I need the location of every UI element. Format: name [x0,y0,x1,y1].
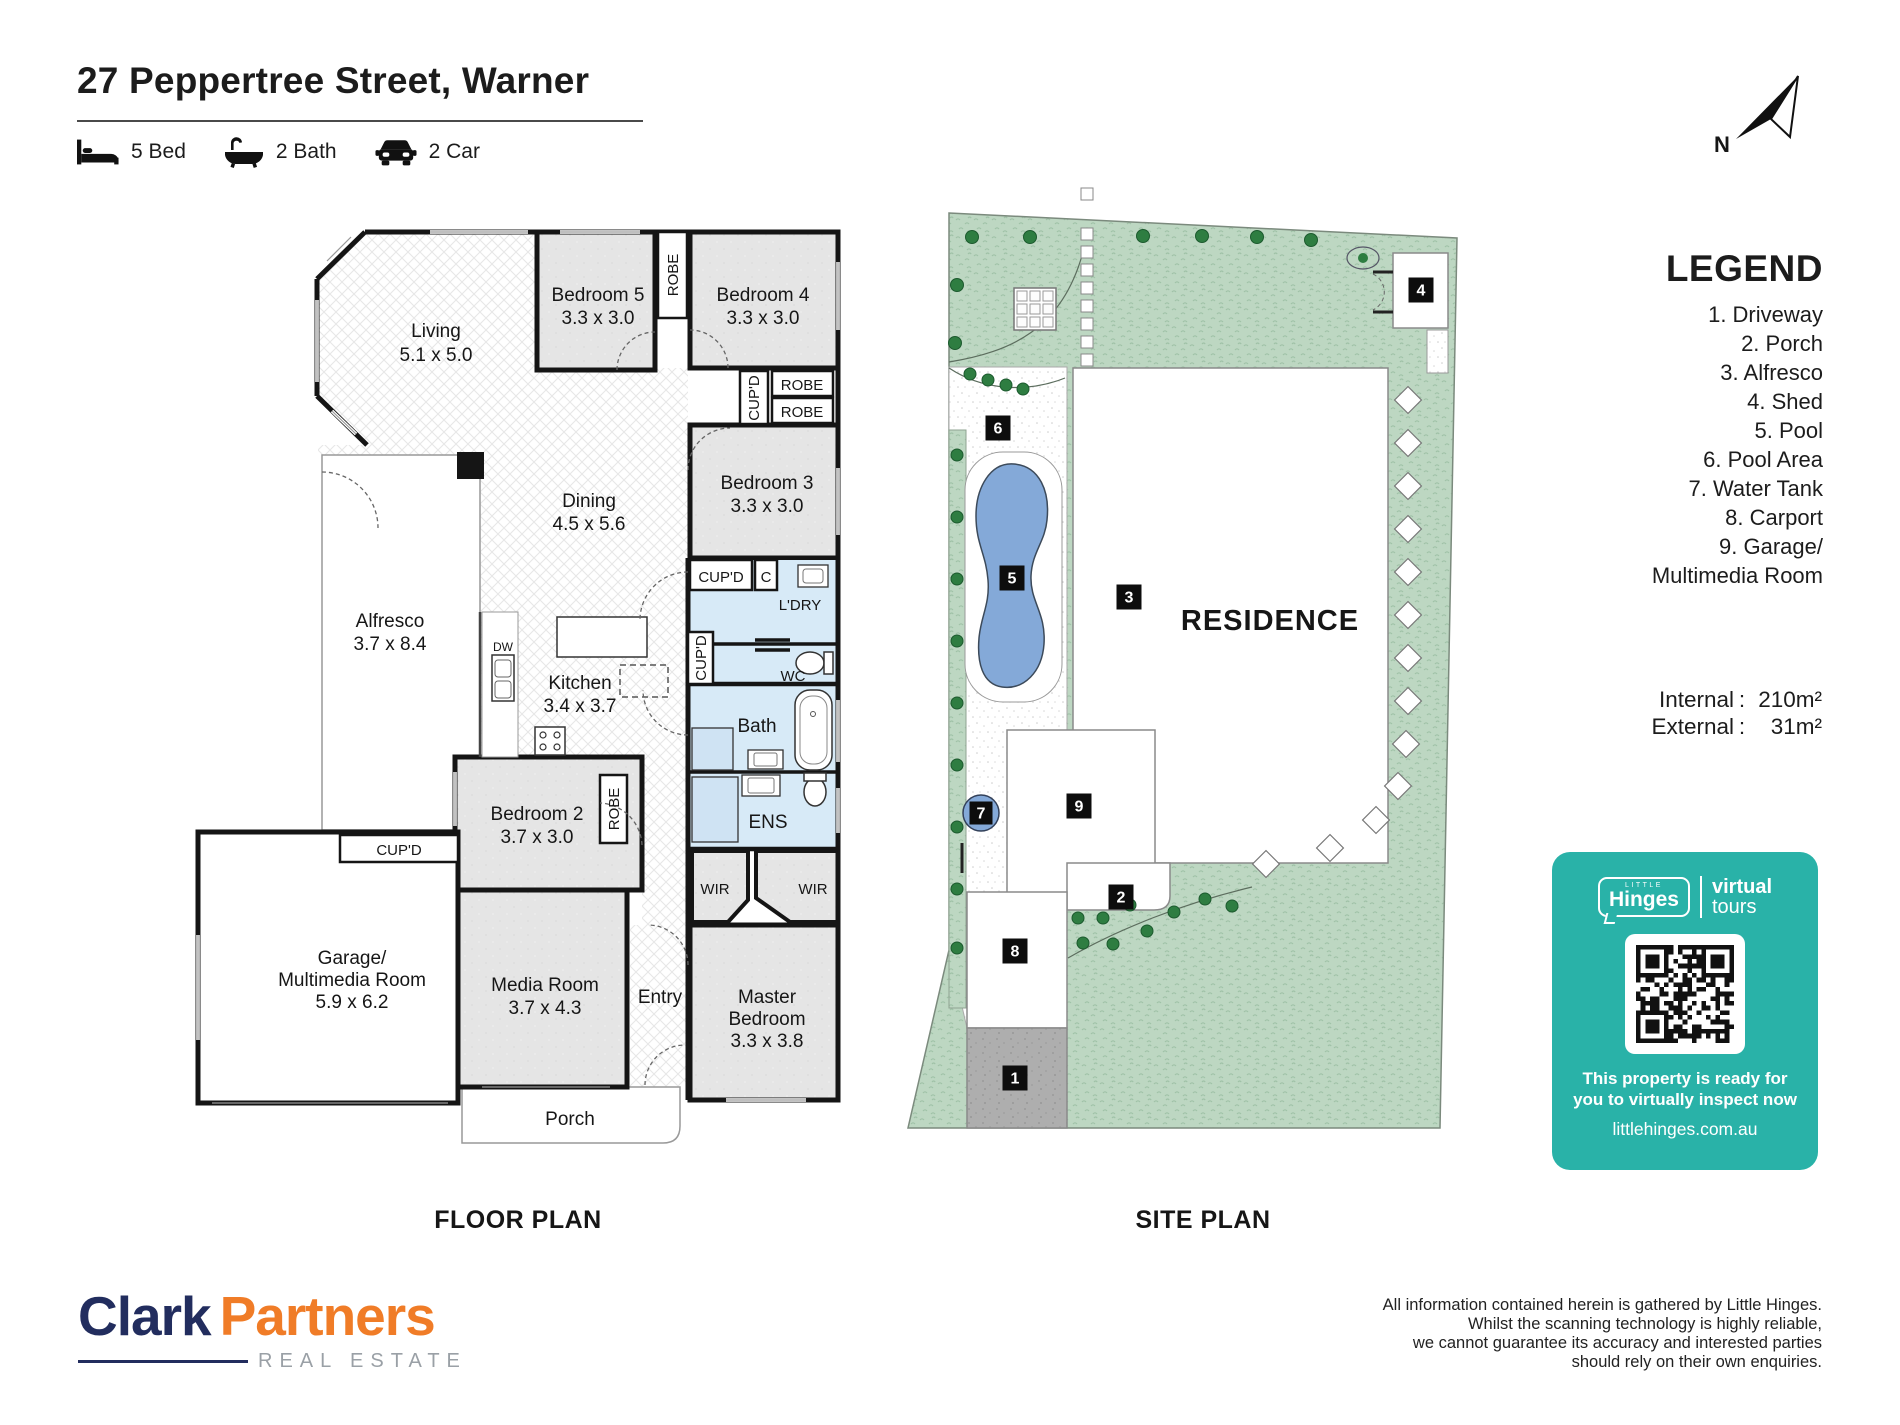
qr-code [1625,934,1745,1054]
svg-text:DW: DW [493,640,514,654]
svg-text:Living: Living [411,321,461,342]
little-hinges-logo: LITTLE Hinges virtual tours [1552,876,1818,918]
legend-item: 8. Carport [1652,503,1823,532]
svg-text:L'DRY: L'DRY [779,597,822,614]
svg-text:5.9 x 6.2: 5.9 x 6.2 [316,992,389,1013]
svg-text:Dining: Dining [562,491,616,512]
internal-label: Internal [1659,686,1734,713]
external-value: 31m² [1771,713,1822,740]
svg-text:3.3 x 3.0: 3.3 x 3.0 [562,308,635,329]
property-floorplan-flyer: 27 Peppertree Street, Warner 5 Bed [0,0,1900,1425]
svg-text:Bedroom: Bedroom [728,1009,805,1030]
legend-item: 4. Shed [1652,387,1823,416]
disclaimer: All information contained herein is gath… [1383,1296,1822,1372]
agency-name-primary: Clark [78,1284,211,1348]
svg-text:3.3 x 3.0: 3.3 x 3.0 [727,308,800,329]
svg-text:Multimedia Room: Multimedia Room [278,970,426,991]
svg-text:Kitchen: Kitchen [548,673,611,694]
svg-text:ROBE: ROBE [781,404,824,421]
logo-rule [78,1360,248,1363]
svg-text:Garage/: Garage/ [318,948,387,969]
svg-text:WC: WC [781,668,806,685]
speech-bubble-icon: LITTLE Hinges [1598,877,1690,917]
floor-plan-title: FLOOR PLAN [434,1206,602,1234]
svg-text:CUP'D: CUP'D [698,569,744,586]
garden-grid [1014,288,1056,330]
internal-area-row: Internal : 210m² [1651,686,1822,713]
svg-text:2: 2 [1117,890,1126,907]
svg-text:3: 3 [1125,590,1134,607]
svg-text:Bedroom 5: Bedroom 5 [552,285,645,306]
legend-item: 5. Pool [1652,416,1823,445]
legend-item: Multimedia Room [1652,561,1823,590]
svg-text:5.1 x 5.0: 5.1 x 5.0 [400,345,473,366]
svg-text:9: 9 [1075,799,1084,816]
floor-plan: Living 5.1 x 5.0 Bedroom 5 3.3 x 3.0 Bed… [198,232,838,1143]
agency-logo: Clark Partners REAL ESTATE [78,1284,498,1373]
plans-canvas: Living 5.1 x 5.0 Bedroom 5 3.3 x 3.0 Bed… [0,0,1900,1425]
legend-item: 6. Pool Area [1652,445,1823,474]
legend-item: 7. Water Tank [1652,474,1823,503]
svg-text:7: 7 [977,806,986,823]
svg-text:Bath: Bath [737,716,776,737]
virtual-tour-message: This property is ready for you to virtua… [1552,1068,1818,1110]
virtual-tour-card: LITTLE Hinges virtual tours This propert… [1552,852,1818,1170]
svg-text:Bedroom 2: Bedroom 2 [491,804,584,825]
residence-label: RESIDENCE [1181,605,1359,637]
svg-text:3.4 x 3.7: 3.4 x 3.7 [544,696,617,717]
legend-item: 1. Driveway [1652,300,1823,329]
svg-text:5: 5 [1008,571,1017,588]
agency-name-secondary: Partners [220,1284,435,1348]
svg-text:ENS: ENS [748,812,787,833]
legend-item: 3. Alfresco [1652,358,1823,387]
svg-text:Bedroom 3: Bedroom 3 [721,473,814,494]
svg-text:ROBE: ROBE [606,788,623,831]
svg-text:CUP'D: CUP'D [376,842,422,859]
svg-text:WIR: WIR [798,881,827,898]
north-arrow-icon: N [1714,76,1798,157]
svg-text:C: C [761,569,772,586]
svg-text:3.7 x 4.3: 3.7 x 4.3 [509,998,582,1019]
site-plan-title: SITE PLAN [1135,1206,1270,1234]
north-label: N [1714,132,1730,157]
legend: LEGEND 1. Driveway 2. Porch 3. Alfresco … [1652,248,1823,590]
svg-text:Entry: Entry [638,987,683,1008]
internal-value: 210m² [1758,686,1822,713]
svg-text:3.7 x 8.4: 3.7 x 8.4 [354,634,427,655]
svg-text:CUP'D: CUP'D [693,635,710,681]
svg-text:3.7 x 3.0: 3.7 x 3.0 [501,827,574,848]
svg-text:6: 6 [994,421,1003,438]
floor-areas: Internal : 210m² External : 31m² [1651,686,1822,740]
legend-item: 2. Porch [1652,329,1823,358]
hall-floor [642,757,688,925]
svg-text:4: 4 [1417,283,1426,300]
bush [1358,253,1368,263]
site-plan: RESIDENCE 1 2 3 4 5 6 7 8 9 [908,188,1457,1128]
svg-text:Bedroom 4: Bedroom 4 [717,285,810,306]
svg-text:Alfresco: Alfresco [356,611,425,632]
svg-text:Porch: Porch [545,1109,595,1130]
svg-text:ROBE: ROBE [781,377,824,394]
svg-text:Master: Master [738,987,797,1008]
external-area-row: External : 31m² [1651,713,1822,740]
shed-pad [1427,330,1448,373]
external-label: External [1651,713,1734,740]
svg-text:8: 8 [1011,944,1020,961]
legend-item: 9. Garage/ [1652,532,1823,561]
svg-text:WIR: WIR [700,881,729,898]
agency-subtitle: REAL ESTATE [258,1350,467,1373]
svg-text:1: 1 [1011,1071,1020,1088]
svg-text:3.3 x 3.8: 3.3 x 3.8 [731,1031,804,1052]
svg-text:CUP'D: CUP'D [746,375,763,421]
virtual-tour-website: littlehinges.com.au [1552,1119,1818,1140]
svg-text:Media Room: Media Room [491,975,599,996]
svg-text:3.3 x 3.0: 3.3 x 3.0 [731,496,804,517]
legend-title: LEGEND [1652,248,1823,290]
svg-text:ROBE: ROBE [665,254,682,297]
svg-text:4.5 x 5.6: 4.5 x 5.6 [553,514,626,535]
